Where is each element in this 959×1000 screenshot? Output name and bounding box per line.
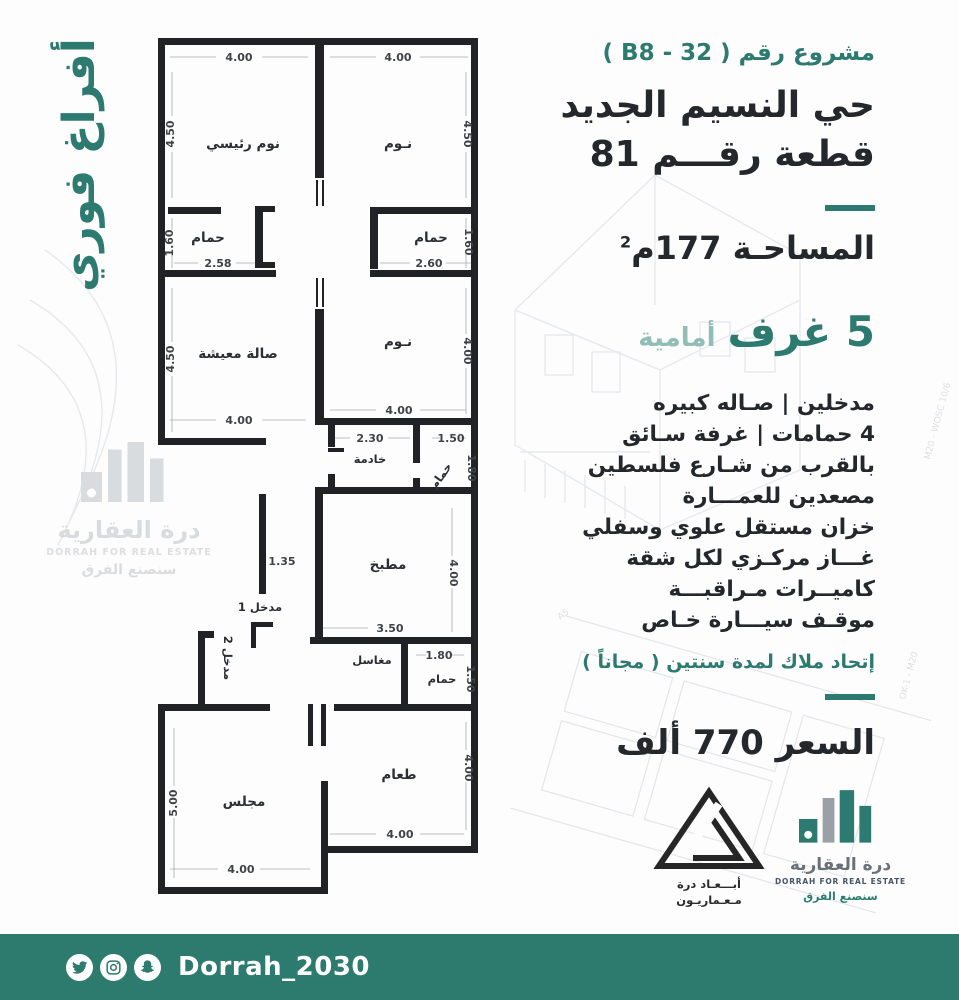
price-value: السعر 770 ألف: [560, 723, 875, 763]
plot-number: قطعة رقـــم 81: [560, 134, 875, 175]
room-label: مطبخ: [370, 557, 407, 573]
footer-bar: Dorrah_2030: [0, 934, 959, 1000]
room-label: نوم رئيسي: [206, 136, 280, 152]
svg-text:M20 - WOSC 10/6: M20 - WOSC 10/6: [923, 381, 953, 460]
feature-item: 4 حمامات | غرفة سـائق: [560, 419, 875, 450]
plan-dimension: 4.50: [164, 345, 177, 372]
room-label: نـوم: [384, 334, 412, 350]
watermark-logo-title: درة العقارية: [40, 516, 218, 544]
feature-item: غـــاز مركـزي لكل شقة: [560, 543, 875, 574]
rooms-line: 5 غرف أمامية: [560, 307, 875, 356]
feature-item: بالقرب من شـارع فلسطين: [560, 450, 875, 481]
feature-item: كاميــرات مـراقبـــة: [560, 574, 875, 605]
hoa-note: إتحاد ملاك لمدة سنتين ( مجاناً ): [560, 651, 875, 673]
plan-dimension: 3.50: [376, 622, 403, 635]
plan-dimension: 5.00: [167, 789, 180, 816]
architect-logo-line1: أبـــعـاد درة: [650, 876, 768, 892]
room-label: حمام: [191, 230, 225, 246]
plan-dimension: 4.00: [461, 337, 474, 364]
district-title: حي النسيم الجديد: [560, 82, 875, 130]
plan-dimension: 1.80: [425, 649, 452, 662]
plan-dimension: 2.60: [415, 257, 442, 270]
plan-dimension: 4.00: [462, 754, 475, 781]
plan-dimension: 1.60: [163, 229, 176, 256]
project-number: مشروع رقم ( B8 - 32 ): [560, 40, 875, 66]
plan-dimension: 1.80: [465, 454, 478, 481]
feature-item: موقـف سيـــارة خـاص: [560, 605, 875, 636]
triangle-icon: [653, 786, 765, 872]
plan-dimension: 4.00: [227, 863, 254, 876]
plan-dimension: 1.35: [268, 555, 295, 568]
room-label: حمام: [414, 230, 448, 246]
social-handle[interactable]: Dorrah_2030: [178, 952, 370, 982]
feature-item: مصعدين للعمـــارة: [560, 481, 875, 512]
brand-logo-title: درة العقارية: [768, 855, 913, 875]
plan-dimension: 4.00: [225, 414, 252, 427]
room-label: حمام: [428, 672, 457, 686]
flyer-canvas: OK-1 - M20 M20 - WOSC 10/6 A5 أفراغ فوري: [0, 0, 959, 1000]
plan-dimension: 2.58: [204, 257, 231, 270]
brand-logo: درة العقارية DORRAH FOR REAL ESTATE سنصن…: [768, 790, 913, 903]
watermark-logo: درة العقارية DORRAH FOR REAL ESTATE سنصن…: [40, 442, 218, 578]
brand-buildings-icon: [799, 790, 883, 848]
room-label: نـوم: [384, 136, 412, 152]
plan-dimension: 2.30: [356, 432, 383, 445]
twitter-icon[interactable]: [66, 954, 93, 981]
plan-dimension: 4.00: [384, 51, 411, 64]
plan-dimension: 1.50: [437, 432, 464, 445]
svg-text:OK-1 - M20: OK-1 - M20: [898, 650, 920, 700]
watermark-buildings-icon: [81, 442, 177, 508]
room-label: حمام: [427, 460, 455, 492]
instagram-icon[interactable]: [100, 954, 127, 981]
plan-dimension: 4.00: [386, 828, 413, 841]
architect-logo: أبـــعـاد درة مـعـماريـون: [650, 786, 768, 908]
watermark-logo-subtitle: DORRAH FOR REAL ESTATE: [40, 547, 218, 558]
teal-divider: [825, 205, 875, 211]
side-banner-text: أفراغ فوري: [48, 15, 112, 315]
teal-divider-2: [825, 694, 875, 700]
info-panel: مشروع رقم ( B8 - 32 ) حي النسيم الجديد ق…: [560, 40, 875, 763]
brand-logo-subtitle: DORRAH FOR REAL ESTATE: [768, 877, 913, 886]
plan-dimension: 1.50: [464, 665, 477, 692]
plan-dimension: 4.00: [225, 51, 252, 64]
room-label: مدخل 1: [238, 600, 282, 614]
feature-item: خزان مستقل علوي وسفلي: [560, 512, 875, 543]
plan-dimension: 4.50: [461, 120, 474, 147]
room-label: مغاسل: [352, 653, 392, 667]
plan-dimension: 4.00: [447, 559, 460, 586]
plan-dimension: 1.60: [462, 228, 475, 255]
rooms-count: 5 غرف: [728, 307, 875, 356]
watermark-logo-tagline: سنصنع الفرق: [40, 562, 218, 578]
plan-dimension: 4.00: [385, 404, 412, 417]
brand-logo-tagline: سنصنع الفرق: [768, 890, 913, 903]
room-label: صالة معيشة: [198, 346, 277, 362]
feature-item: مدخلين | صـاله كبيره: [560, 388, 875, 419]
plan-dimension: 4.50: [164, 120, 177, 147]
features-list: مدخلين | صـاله كبيره4 حمامات | غرفة سـائ…: [560, 388, 875, 636]
snapchat-icon[interactable]: [134, 954, 161, 981]
room-label: خادمة: [354, 452, 387, 466]
area-value: المساحـة 177م2: [560, 229, 875, 267]
room-label: مدخل 2: [221, 636, 235, 680]
room-label: طعام: [381, 767, 416, 783]
architect-logo-line2: مـعـماريـون: [650, 892, 768, 908]
room-label: مجلس: [223, 794, 266, 810]
rooms-side: أمامية: [638, 323, 715, 353]
